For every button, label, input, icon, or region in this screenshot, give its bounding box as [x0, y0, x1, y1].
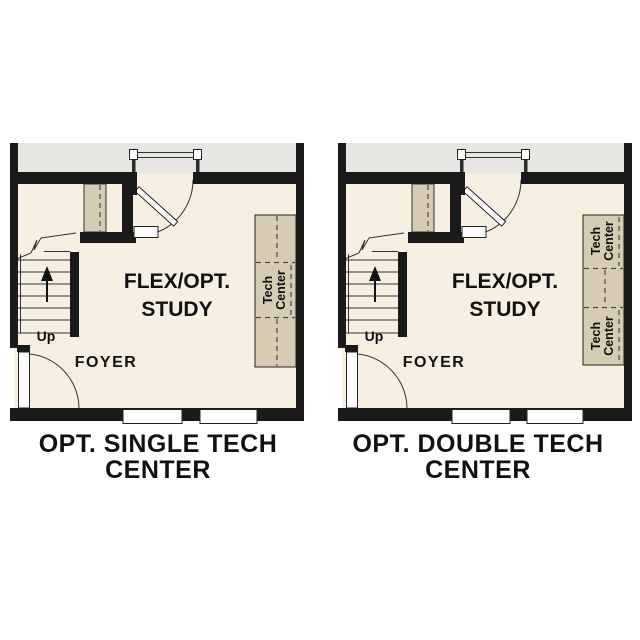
caption-line-1: OPT. DOUBLE TECH: [330, 431, 626, 457]
closet: [84, 184, 106, 232]
tech-center-label: Center: [274, 270, 288, 310]
closet-door-leaf: [134, 227, 158, 238]
foyer-label: FOYER: [75, 354, 138, 371]
closet: [412, 184, 434, 232]
closet-door-leaf: [462, 227, 486, 238]
stairs-up-label: Up: [365, 328, 384, 344]
floor-plan-double-drawing: Tech Center Tech Center FLEX/OPT. STUDY …: [338, 143, 634, 427]
room-label: FLEX/OPT.: [452, 270, 558, 293]
floor-plan-single-drawing: Tech Center FLEX/OPT. STUDY FOYER Up: [10, 143, 306, 427]
room-label: STUDY: [469, 298, 540, 321]
tech-center-double: Tech Center Tech Center: [583, 215, 624, 365]
floor-plan-single: Tech Center FLEX/OPT. STUDY FOYER Up: [10, 143, 306, 427]
tech-center-label: Center: [602, 221, 616, 261]
floor-plan-double: Tech Center Tech Center FLEX/OPT. STUDY …: [338, 143, 634, 427]
tech-center-label: Tech: [261, 276, 275, 304]
caption-double: OPT. DOUBLE TECH CENTER: [330, 431, 626, 483]
floor-plan-sheet: Tech Center FLEX/OPT. STUDY FOYER Up: [0, 0, 640, 640]
caption-single: OPT. SINGLE TECH CENTER: [10, 431, 306, 483]
tech-center-label: Center: [602, 316, 616, 356]
caption-line-2: CENTER: [10, 457, 306, 483]
room-label: STUDY: [141, 298, 212, 321]
tech-center-single: Tech Center: [255, 215, 296, 367]
room-label: FLEX/OPT.: [124, 270, 230, 293]
stairs-up-label: Up: [37, 328, 56, 344]
tech-center-label: Tech: [589, 227, 603, 255]
caption-line-1: OPT. SINGLE TECH: [10, 431, 306, 457]
tech-center-label: Tech: [589, 322, 603, 350]
caption-line-2: CENTER: [330, 457, 626, 483]
foyer-label: FOYER: [403, 354, 466, 371]
